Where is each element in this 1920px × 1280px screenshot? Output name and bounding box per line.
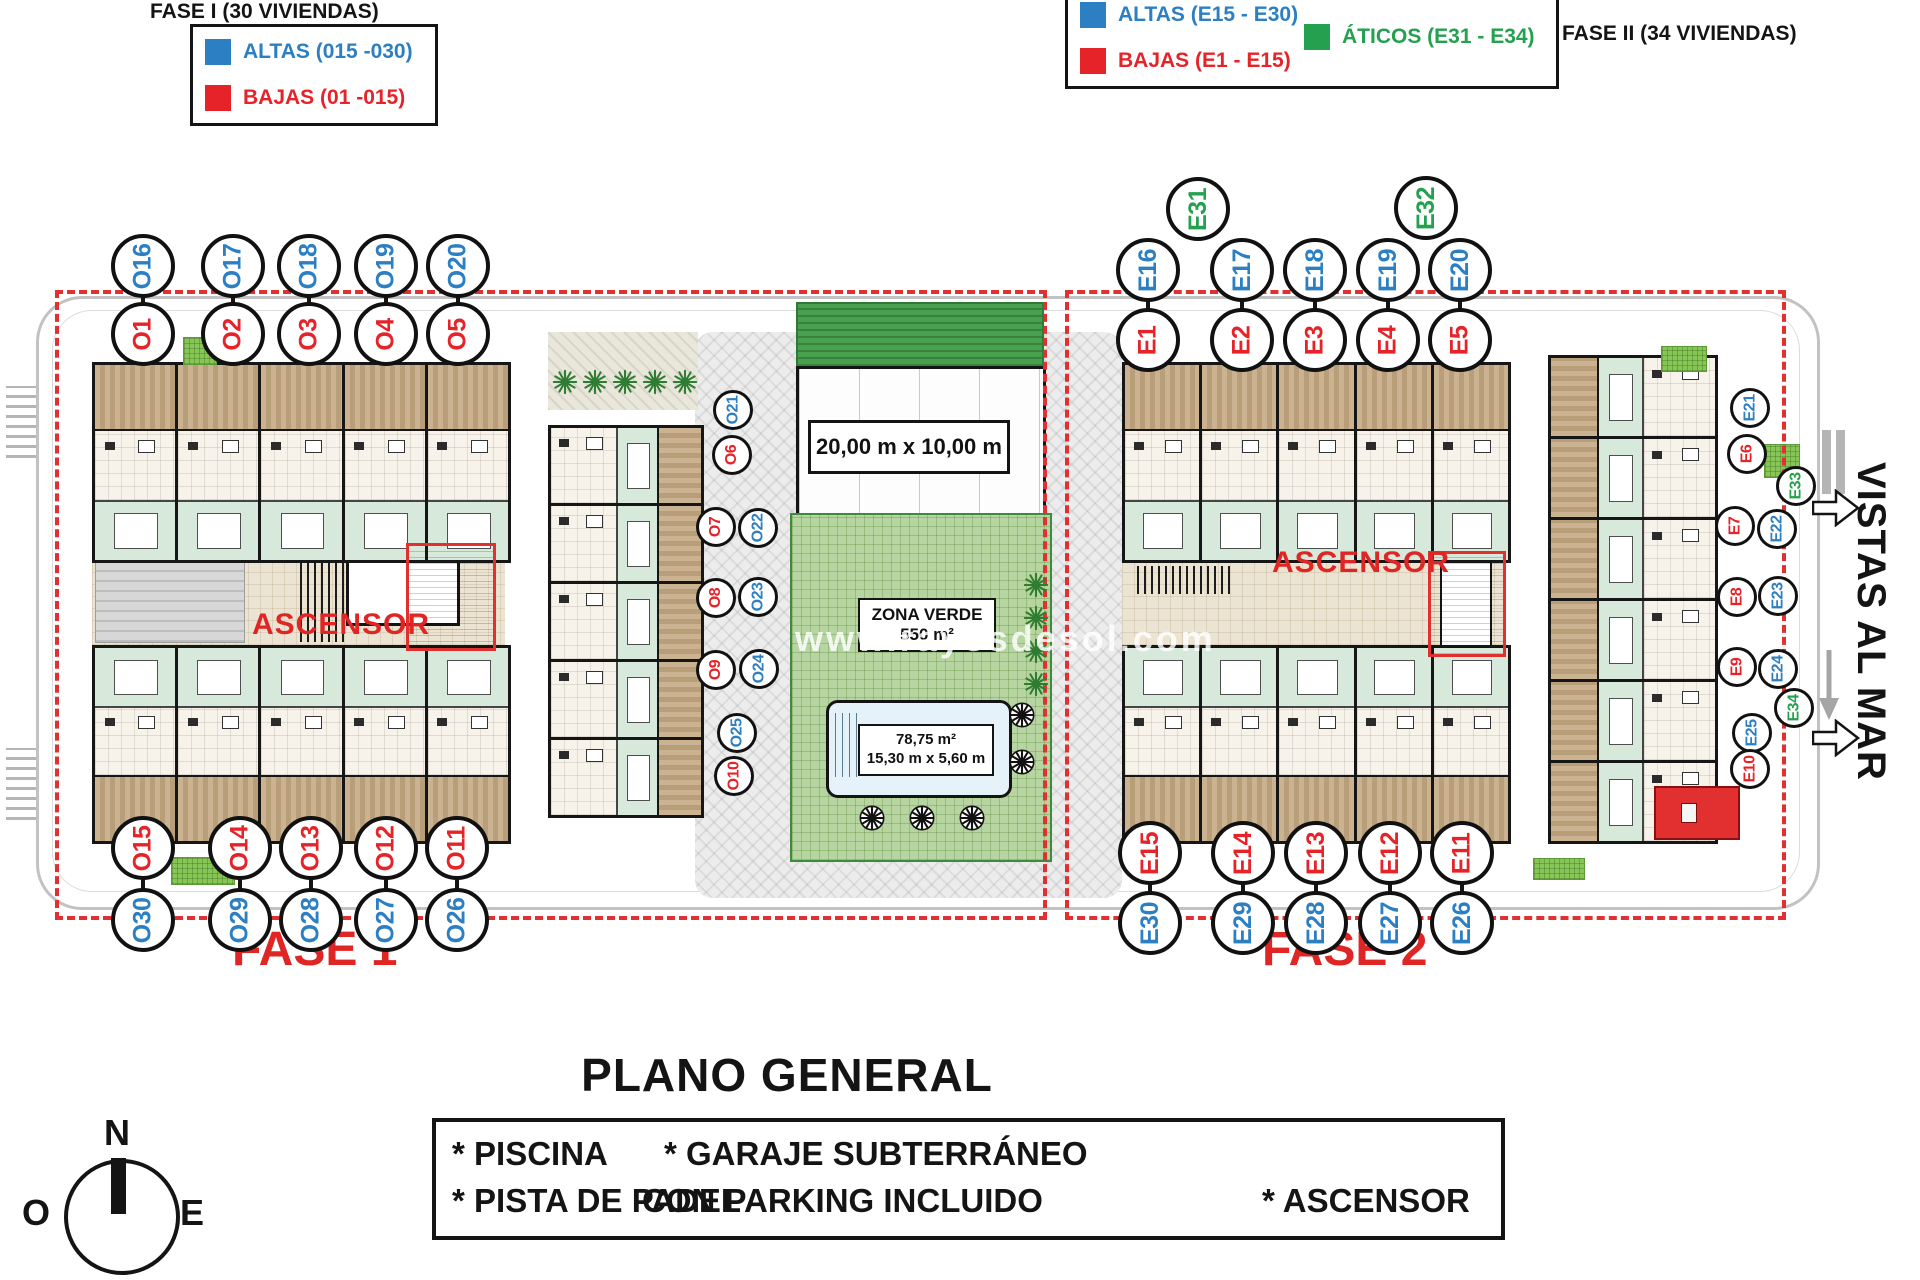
unit-label-O30: O30 — [111, 888, 175, 952]
unit-label-text: E32 — [1411, 187, 1440, 230]
unit-label-text: O13 — [296, 825, 325, 871]
unit-label-text: O23 — [749, 583, 767, 612]
unit-label-text: E19 — [1373, 249, 1402, 292]
unit-label-text: O19 — [371, 243, 400, 289]
fase1-boundary-dashed — [55, 290, 1047, 920]
unit-label-O19: O19 — [354, 234, 418, 298]
unit-label-text: O8 — [707, 588, 725, 608]
unit-label-O21: O21 — [713, 390, 753, 430]
unit-label-O22: O22 — [738, 508, 778, 548]
unit-label-text: E14 — [1228, 832, 1257, 875]
legend-swatch-bajas-icon — [205, 85, 231, 111]
unit-label-O1: O1 — [111, 302, 175, 366]
unit-label-text: E28 — [1301, 902, 1330, 945]
unit-label-E17: E17 — [1210, 238, 1274, 302]
unit-label-text: E11 — [1447, 832, 1476, 874]
unit-label-O20: O20 — [426, 234, 490, 298]
unit-label-O9: O9 — [696, 650, 736, 690]
legend-fase2-altas: ALTAS (E15 - E30) — [1118, 3, 1298, 27]
legend-swatch-bajas-icon — [1080, 48, 1106, 74]
unit-label-E31: E31 — [1166, 177, 1230, 241]
unit-label-text: O4 — [371, 318, 400, 350]
unit-label-text: O16 — [128, 243, 157, 289]
unit-label-text: O21 — [724, 396, 742, 425]
legend-fase2-box: ALTAS (E15 - E30) BAJAS (E1 - E15) ÁTICO… — [1065, 0, 1559, 89]
unit-label-text: E7 — [1726, 517, 1744, 536]
unit-label-text: O17 — [218, 243, 247, 289]
unit-label-O27: O27 — [354, 888, 418, 952]
legend-swatch-altas-icon — [1080, 2, 1106, 28]
legend-fase1-altas: ALTAS (015 -030) — [243, 40, 413, 64]
unit-label-E2: E2 — [1210, 308, 1274, 372]
unit-label-text: E30 — [1135, 902, 1164, 945]
sea-view-arrow-icon — [1812, 489, 1860, 527]
parasol-icon — [1009, 702, 1035, 733]
unit-label-text: E29 — [1228, 902, 1257, 945]
unit-label-text: O6 — [723, 445, 741, 465]
unit-label-text: O29 — [225, 897, 254, 943]
unit-label-E14: E14 — [1211, 821, 1275, 885]
unit-label-E4: E4 — [1356, 308, 1420, 372]
legend-fase2-bajas: BAJAS (E1 - E15) — [1118, 49, 1291, 73]
amenity-piscina: * PISCINA — [452, 1135, 608, 1173]
unit-label-text: O10 — [725, 762, 743, 791]
down-arrow-icon — [1816, 648, 1842, 722]
tree-icon — [582, 369, 608, 400]
unit-label-O7: O7 — [696, 507, 736, 547]
unit-label-text: E26 — [1447, 902, 1476, 945]
unit-label-text: E24 — [1769, 656, 1787, 683]
parasol-icon — [859, 805, 885, 836]
unit-label-O18: O18 — [277, 234, 341, 298]
unit-label-text: O2 — [218, 318, 247, 350]
west-access-steps-bottom — [6, 748, 36, 820]
unit-label-E32: E32 — [1394, 176, 1458, 240]
unit-label-text: O5 — [443, 318, 472, 350]
unit-label-text: E9 — [1728, 658, 1746, 677]
unit-label-E16: E16 — [1116, 238, 1180, 302]
unit-label-text: O22 — [749, 514, 767, 543]
unit-label-E3: E3 — [1283, 308, 1347, 372]
unit-label-O10: O10 — [714, 756, 754, 796]
amenity-ascensor: * ASCENSOR — [1262, 1182, 1470, 1220]
unit-label-text: O12 — [371, 825, 400, 871]
unit-label-E24: E24 — [1758, 649, 1798, 689]
unit-label-text: E13 — [1301, 832, 1330, 875]
unit-label-E28: E28 — [1284, 891, 1348, 955]
unit-label-text: O26 — [442, 897, 471, 943]
unit-label-text: E21 — [1741, 395, 1759, 422]
legend-fase1-bajas: BAJAS (01 -015) — [243, 86, 405, 110]
unit-label-text: O28 — [296, 897, 325, 943]
unit-label-E11: E11 — [1430, 821, 1494, 885]
legend-fase1-box: ALTAS (015 -030) BAJAS (01 -015) — [190, 24, 438, 126]
unit-label-E8: E8 — [1717, 577, 1757, 617]
tree-icon — [1023, 572, 1049, 603]
unit-label-text: E1 — [1134, 325, 1163, 355]
watermark: www.rayosdesol.com — [795, 618, 1216, 660]
unit-label-E5: E5 — [1428, 308, 1492, 372]
unit-label-E20: E20 — [1428, 238, 1492, 302]
unit-label-E9: E9 — [1717, 647, 1757, 687]
unit-label-text: E15 — [1135, 832, 1164, 875]
ascensor-label-fase2: ASCENSOR — [1272, 546, 1450, 580]
unit-label-text: O18 — [294, 243, 323, 289]
unit-label-text: E4 — [1374, 325, 1403, 355]
unit-label-text: O20 — [443, 243, 472, 289]
compass-north: N — [104, 1112, 130, 1154]
amenity-parking: CON PARKING INCLUIDO — [642, 1182, 1043, 1220]
east-access-bar-2 — [1836, 430, 1845, 494]
unit-label-text: E27 — [1375, 902, 1404, 945]
east-access-bar-1 — [1822, 430, 1831, 494]
unit-label-O3: O3 — [277, 302, 341, 366]
legend-swatch-aticos-icon — [1304, 24, 1330, 50]
unit-label-text: E16 — [1133, 249, 1162, 292]
legend-fase1-title: FASE I (30 VIVIENDAS) — [150, 0, 379, 24]
tree-icon — [672, 369, 698, 400]
unit-label-E34: E34 — [1774, 688, 1814, 728]
unit-label-E13: E13 — [1284, 821, 1348, 885]
unit-label-O17: O17 — [201, 234, 265, 298]
unit-label-O25: O25 — [717, 713, 757, 753]
unit-label-text: O30 — [128, 897, 157, 943]
unit-label-E6: E6 — [1727, 434, 1767, 474]
unit-label-O24: O24 — [739, 649, 779, 689]
unit-label-E26: E26 — [1430, 891, 1494, 955]
unit-label-E12: E12 — [1358, 821, 1422, 885]
sea-view-arrow-icon — [1812, 719, 1860, 757]
unit-label-O5: O5 — [426, 302, 490, 366]
parasol-icon — [959, 805, 985, 836]
unit-label-O2: O2 — [201, 302, 265, 366]
unit-label-O8: O8 — [696, 578, 736, 618]
unit-label-O26: O26 — [425, 888, 489, 952]
unit-label-text: O11 — [443, 826, 472, 870]
unit-label-text: E10 — [1741, 756, 1759, 783]
fase2-boundary-dashed — [1065, 290, 1786, 920]
unit-label-E21: E21 — [1730, 388, 1770, 428]
unit-label-text: E25 — [1743, 720, 1761, 747]
unit-label-O16: O16 — [111, 234, 175, 298]
unit-label-text: O14 — [225, 825, 254, 871]
unit-label-text: E12 — [1375, 832, 1404, 875]
legend-swatch-altas-icon — [205, 39, 231, 65]
unit-label-text: E22 — [1768, 516, 1786, 543]
unit-label-text: E18 — [1300, 249, 1329, 292]
unit-label-E1: E1 — [1116, 308, 1180, 372]
unit-label-E30: E30 — [1118, 891, 1182, 955]
amenities-box: * PISCINA * PISTA DE PADEL * GARAJE SUBT… — [432, 1118, 1505, 1240]
unit-label-text: E6 — [1738, 445, 1756, 464]
unit-label-E7: E7 — [1715, 506, 1755, 546]
unit-label-O23: O23 — [738, 577, 778, 617]
unit-label-text: O25 — [728, 719, 746, 748]
unit-label-text: O24 — [750, 655, 768, 684]
unit-label-text: O7 — [707, 517, 725, 537]
parasol-icon — [909, 805, 935, 836]
legend-fase2-aticos: ÁTICOS (E31 - E34) — [1342, 25, 1535, 49]
unit-label-text: O27 — [371, 897, 400, 943]
unit-label-O4: O4 — [354, 302, 418, 366]
unit-label-text: E20 — [1445, 249, 1474, 292]
unit-label-E19: E19 — [1356, 238, 1420, 302]
unit-label-E27: E27 — [1358, 891, 1422, 955]
tree-icon — [612, 369, 638, 400]
unit-label-O28: O28 — [279, 888, 343, 952]
unit-label-text: O15 — [128, 825, 157, 871]
compass-east: E — [180, 1192, 204, 1234]
unit-label-text: E17 — [1227, 249, 1256, 292]
unit-label-text: E8 — [1728, 588, 1746, 607]
unit-label-O12: O12 — [354, 816, 418, 880]
unit-label-E18: E18 — [1283, 238, 1347, 302]
unit-label-text: E23 — [1769, 583, 1787, 610]
unit-label-text: E3 — [1301, 325, 1330, 355]
unit-label-O15: O15 — [111, 816, 175, 880]
unit-label-E25: E25 — [1732, 713, 1772, 753]
tree-icon — [1023, 671, 1049, 702]
unit-label-text: E34 — [1785, 695, 1803, 722]
unit-label-O6: O6 — [712, 435, 752, 475]
ascensor-label-fase1: ASCENSOR — [252, 608, 430, 642]
unit-label-E22: E22 — [1757, 509, 1797, 549]
unit-label-O11: O11 — [425, 816, 489, 880]
site-plan-canvas: 20,00 m x 10,00 m ZONA VERDE 550 m² 78,7… — [0, 0, 1920, 1280]
unit-label-text: E31 — [1183, 188, 1212, 231]
legend-fase2-title: FASE II (34 VIVIENDAS) — [1562, 22, 1797, 46]
unit-label-text: E5 — [1446, 325, 1475, 355]
unit-label-text: O3 — [294, 318, 323, 350]
unit-label-E15: E15 — [1118, 821, 1182, 885]
compass-needle-icon — [111, 1158, 126, 1214]
tree-icon — [642, 369, 668, 400]
unit-label-text: O1 — [128, 318, 157, 350]
unit-label-text: O9 — [707, 660, 725, 680]
page-title: PLANO GENERAL — [557, 1048, 1017, 1102]
west-access-steps-top — [6, 386, 36, 458]
amenity-garaje: * GARAJE SUBTERRÁNEO — [664, 1135, 1088, 1173]
parasol-icon — [1009, 749, 1035, 780]
unit-label-text: E2 — [1228, 325, 1257, 355]
unit-label-E23: E23 — [1758, 576, 1798, 616]
unit-label-O29: O29 — [208, 888, 272, 952]
unit-label-text: E33 — [1787, 473, 1805, 500]
unit-label-E29: E29 — [1211, 891, 1275, 955]
unit-label-O13: O13 — [279, 816, 343, 880]
unit-label-E10: E10 — [1730, 749, 1770, 789]
unit-label-O14: O14 — [208, 816, 272, 880]
unit-label-E33: E33 — [1776, 466, 1816, 506]
compass-west: O — [22, 1192, 50, 1234]
tree-icon — [552, 369, 578, 400]
